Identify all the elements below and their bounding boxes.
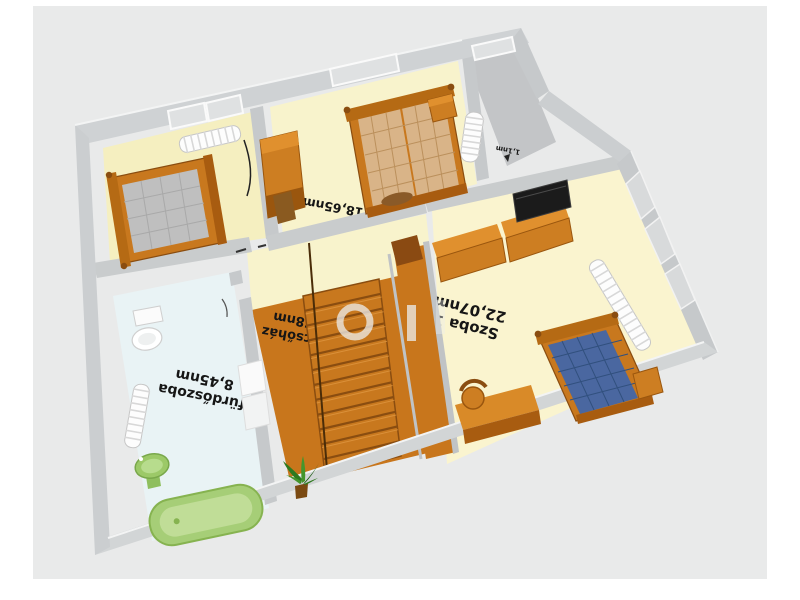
floorplan-canvas: Szoba 1 22,07nm fürdőszoba 8,45nm lépcső… bbox=[0, 0, 800, 600]
floorplan-3d-render: Szoba 1 22,07nm fürdőszoba 8,45nm lépcső… bbox=[0, 0, 800, 600]
